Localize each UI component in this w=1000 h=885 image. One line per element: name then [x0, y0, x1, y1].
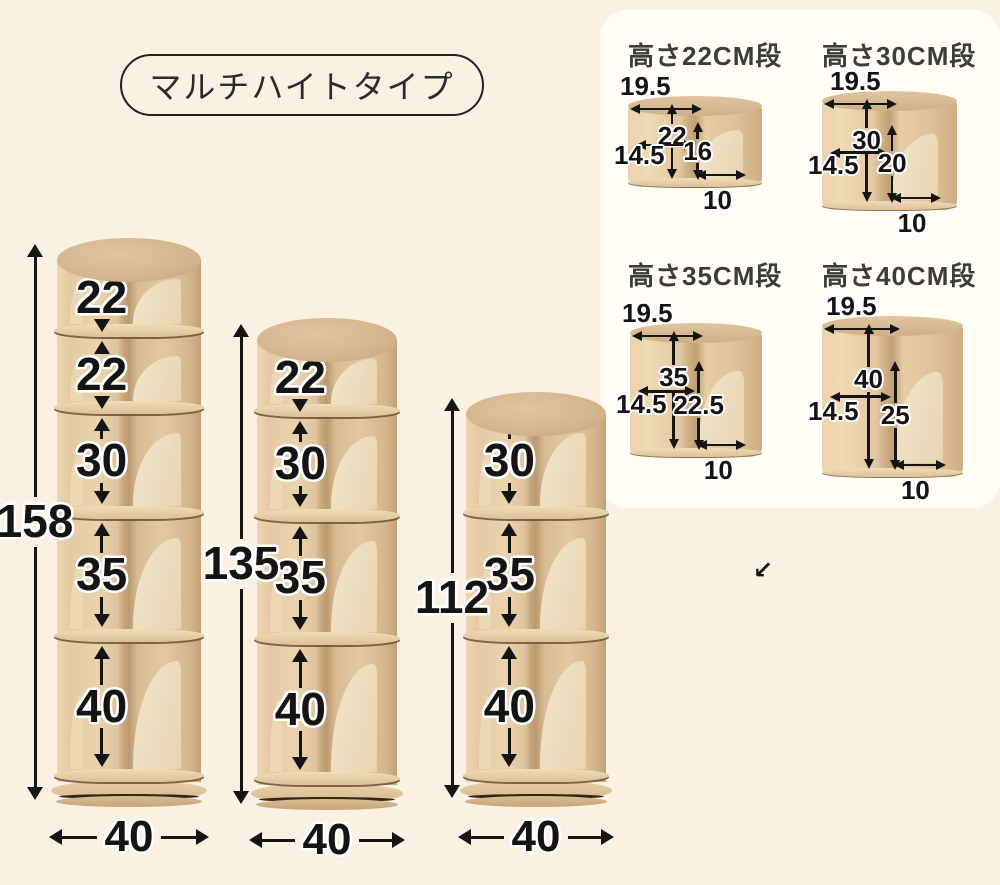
- book-stopper-arch: [540, 538, 586, 629]
- section-title-22cm: 高さ22CM段: [628, 36, 782, 73]
- shelf-board: [54, 324, 204, 337]
- tower-top-cap: [57, 238, 201, 282]
- book-stopper-arch: [331, 359, 377, 404]
- book-stopper-arch: [133, 356, 181, 401]
- tier-height-dimension: 22: [66, 341, 138, 399]
- shelf-tier: 40: [57, 642, 201, 782]
- tier-height-value: 22: [275, 356, 326, 400]
- tier-height-value: 30: [76, 439, 127, 483]
- tower-tiers: 22 22 30: [57, 260, 201, 782]
- down-arrow-icon: [508, 728, 511, 755]
- book-stopper-arch: [331, 541, 377, 632]
- tier-height-dimension: 40: [66, 646, 138, 767]
- base-width-dimension: 40: [249, 817, 405, 863]
- slot-width-arrow: [891, 191, 941, 205]
- tier-height-value: 30: [484, 439, 535, 483]
- base-width-dimension: 40: [458, 814, 614, 860]
- down-arrow-icon: [894, 428, 897, 461]
- shelf-board: [54, 401, 204, 414]
- tier-height-dimension: 30: [66, 418, 138, 504]
- total-height-dimension: 135: [203, 324, 279, 804]
- type-badge: マルチハイトタイプ: [120, 54, 484, 116]
- inner-width-value: 14.5: [616, 392, 667, 417]
- inner-width-value: 14.5: [808, 153, 859, 178]
- tier-height-value: 22: [76, 353, 127, 397]
- tier-height-value: 22: [76, 276, 127, 320]
- tier-height-value: 40: [76, 685, 127, 729]
- tier-height-value: 35: [275, 556, 326, 600]
- shelf-tier: 35: [57, 519, 201, 642]
- inner-width-value: 14.5: [808, 399, 859, 424]
- book-stopper-arch: [540, 661, 586, 769]
- base-width-value: 40: [303, 819, 352, 861]
- base-ring: [259, 797, 396, 802]
- divider-height-dimension: 22.5: [669, 361, 729, 450]
- tier-detail-figure-22cm: 19.5 22 14.5 16 10: [628, 98, 762, 187]
- tier-height-dimension: 35: [66, 523, 138, 627]
- section-title-40cm: 高さ40CM段: [822, 256, 976, 293]
- total-height-value: 158: [0, 500, 73, 544]
- slot-width-arrow: [696, 168, 746, 182]
- tier-height-value: 40: [275, 688, 326, 732]
- book-stopper-arch: [331, 664, 377, 772]
- shelf-tier: 22: [57, 337, 201, 414]
- slot-width-value: 10: [703, 188, 732, 213]
- section-title-30cm: 高さ30CM段: [822, 36, 976, 73]
- tier-detail-figure-40cm: 19.5 40 14.5 25 10: [822, 318, 963, 477]
- base-ring: [59, 794, 199, 799]
- down-arrow-icon: [451, 623, 454, 786]
- double-arrow-icon: [706, 174, 736, 177]
- book-stopper-arch: [133, 279, 181, 324]
- product-dimension-diagram: マルチハイトタイプ 22 22: [0, 0, 1000, 885]
- top-depth-value: 19.5: [826, 294, 877, 319]
- left-arrow-icon: [471, 836, 504, 839]
- tier-detail-figure-35cm: 19.5 35 14.5 22.5 10: [630, 325, 762, 457]
- right-arrow-icon: [568, 836, 601, 839]
- shelf-board: [54, 506, 204, 519]
- divider-height-value: 16: [683, 139, 712, 164]
- divider-height-value: 20: [878, 151, 907, 176]
- divider-height-dimension: 25: [865, 361, 925, 470]
- down-arrow-icon: [240, 589, 243, 792]
- tier-height-value: 40: [484, 685, 535, 729]
- tier-height-value: 35: [484, 553, 535, 597]
- up-arrow-icon: [894, 370, 897, 403]
- base-width-dimension: 40: [49, 814, 209, 860]
- double-arrow-icon: [707, 444, 736, 447]
- down-arrow-icon: [100, 728, 103, 755]
- top-depth-value: 19.5: [620, 74, 671, 99]
- down-arrow-icon: [34, 547, 37, 788]
- tier-height-value: 30: [275, 442, 326, 486]
- tier-height-value: 35: [76, 553, 127, 597]
- slot-width-value: 10: [901, 478, 930, 503]
- base-width-value: 40: [512, 816, 561, 858]
- up-arrow-icon: [451, 410, 454, 573]
- book-stopper-arch: [133, 538, 181, 629]
- total-height-dimension: 112: [414, 398, 490, 798]
- book-stopper-arch: [133, 433, 181, 506]
- book-stopper-arch: [540, 433, 586, 506]
- left-arrow-icon: [62, 836, 97, 839]
- book-stopper-arch: [331, 436, 377, 509]
- rotating-base: [51, 782, 207, 808]
- total-height-dimension: 158: [0, 244, 73, 800]
- divider-height-value: 25: [881, 403, 910, 428]
- shelf-board: [54, 629, 204, 642]
- slot-width-value: 10: [898, 211, 927, 236]
- total-height-value: 112: [415, 576, 489, 620]
- type-badge-label: マルチハイトタイプ: [149, 62, 454, 108]
- up-arrow-icon: [34, 256, 37, 497]
- bookshelf-tower-158: 22 22 30: [57, 238, 201, 808]
- double-arrow-icon: [904, 464, 936, 467]
- divider-height-value: 22.5: [673, 393, 724, 418]
- slot-width-arrow: [697, 438, 746, 452]
- top-depth-value: 19.5: [622, 301, 673, 326]
- down-arrow-icon: [299, 731, 302, 758]
- right-arrow-icon: [161, 836, 196, 839]
- double-arrow-icon: [901, 197, 931, 200]
- section-title-35cm: 高さ35CM段: [628, 256, 782, 293]
- right-arrow-icon: [359, 839, 392, 842]
- tier-detail-figure-30cm: 19.5 30 14.5 20 10: [822, 93, 957, 210]
- slot-width-arrow: [894, 458, 946, 472]
- up-arrow-icon: [240, 336, 243, 539]
- slot-width-value: 10: [704, 458, 733, 483]
- inner-width-value: 14.5: [614, 143, 665, 168]
- base-width-value: 40: [105, 816, 154, 858]
- shelf-tier: 30: [57, 414, 201, 519]
- book-stopper-arch: [133, 661, 181, 769]
- left-arrow-icon: [262, 839, 295, 842]
- shelf-board: [54, 769, 204, 782]
- stray-arrow-icon: ↙: [753, 556, 773, 585]
- total-height-value: 135: [203, 542, 280, 586]
